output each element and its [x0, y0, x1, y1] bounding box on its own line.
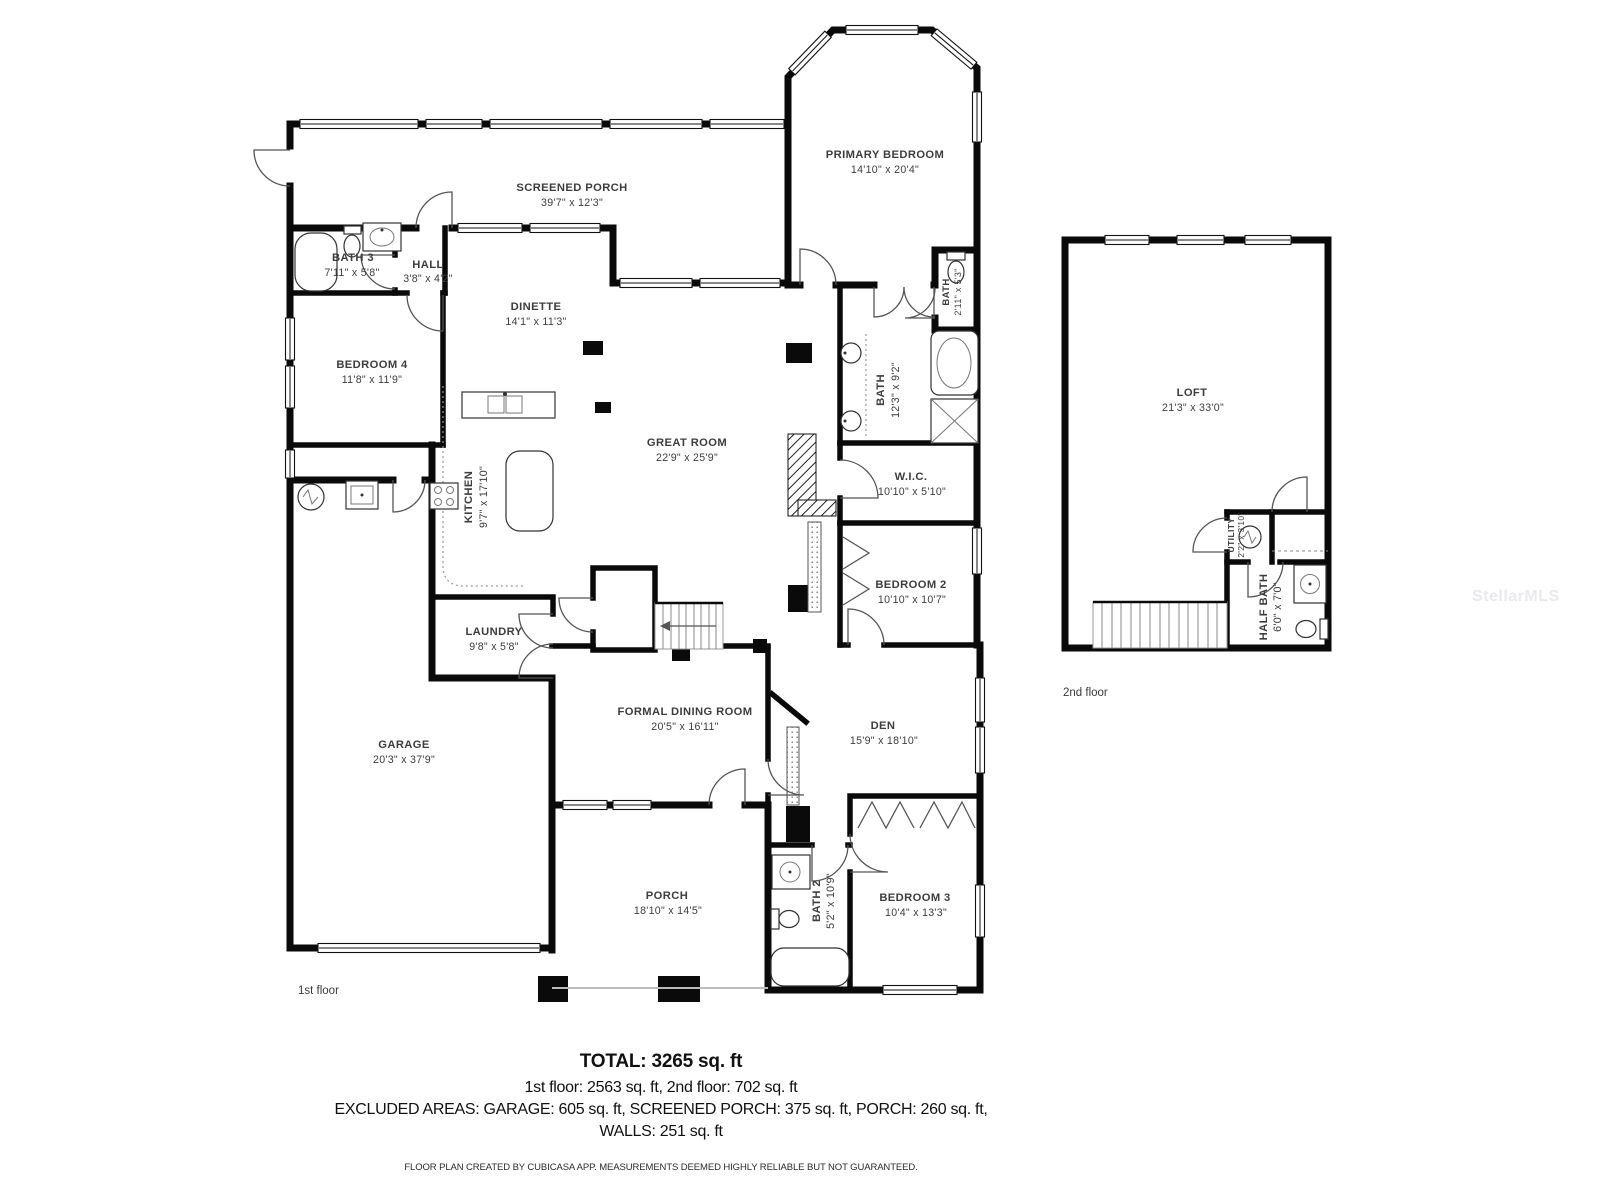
stellar-mls-watermark: StellarMLS	[1472, 588, 1560, 606]
bifold-closet-doors	[920, 802, 975, 828]
total-area-text: TOTAL: 3265 sq. ft	[0, 1051, 1322, 1073]
first-floor-interior-walls	[290, 228, 980, 990]
disclaimer-text: FLOOR PLAN CREATED BY CUBICASA APP. MEAS…	[0, 1162, 1322, 1173]
stairs-first-floor	[655, 603, 723, 649]
svg-text:10'10" x 10'7": 10'10" x 10'7"	[878, 594, 946, 606]
svg-text:20'5" x 16'11": 20'5" x 16'11"	[651, 721, 718, 733]
room-label-half-bath: HALF BATH	[1258, 574, 1270, 641]
svg-text:6'0" x 7'0": 6'0" x 7'0"	[1272, 582, 1284, 632]
second-floor-exterior-walls	[1065, 240, 1328, 648]
svg-text:2'2" x 3'10": 2'2" x 3'10"	[1236, 512, 1246, 558]
svg-text:14'1" x 11'3": 14'1" x 11'3"	[505, 316, 566, 328]
svg-text:20'3" x 37'9": 20'3" x 37'9"	[373, 754, 435, 766]
room-label-primary-bath: BATH	[875, 374, 887, 406]
bathtub	[771, 948, 849, 986]
toilet	[1320, 619, 1328, 639]
svg-text:21'3" x 33'0": 21'3" x 33'0"	[1162, 402, 1224, 414]
svg-text:7'11" x 5'8": 7'11" x 5'8"	[324, 267, 379, 279]
room-labels-first-floor: SCREENED PORCH 39'7" x 12'3" PRIMARY BED…	[298, 149, 963, 997]
room-label-garage: GARAGE	[378, 739, 430, 751]
bifold-closet-doors	[843, 537, 869, 569]
half-bath-fixtures	[1294, 565, 1328, 639]
room-label-bath2: BATH 2	[811, 880, 823, 922]
garage-fixtures	[298, 481, 378, 510]
kitchen-island	[506, 451, 553, 531]
windows-second-floor	[1105, 236, 1291, 245]
second-floor-caption: 2nd floor	[1063, 687, 1108, 699]
room-label-porch: PORCH	[646, 890, 688, 902]
excluded-areas-text: EXCLUDED AREAS: GARAGE: 605 sq. ft, SCRE…	[0, 1101, 1322, 1119]
second-floor-plan: LOFT 21'3" x 33'0" UTILITY 2'2" x 3'10" …	[1063, 236, 1328, 700]
room-label-kitchen: KITCHEN	[463, 471, 475, 524]
room-label-screened-porch: SCREENED PORCH	[516, 182, 627, 194]
bifold-closet-doors	[843, 573, 869, 605]
walls-area-text: WALLS: 251 sq. ft	[0, 1123, 1322, 1141]
room-label-den: DEN	[871, 720, 896, 732]
room-label-bedroom2: BEDROOM 2	[875, 579, 946, 591]
room-label-great-room: GREAT ROOM	[647, 437, 727, 449]
room-label-bath3: BATH 3	[332, 252, 374, 264]
svg-text:12'3" x 9'2": 12'3" x 9'2"	[890, 362, 902, 418]
svg-text:5'2" x 10'9": 5'2" x 10'9"	[825, 873, 837, 929]
svg-text:14'10" x 20'4": 14'10" x 20'4"	[851, 164, 919, 176]
floor-areas-text: 1st floor: 2563 sq. ft, 2nd floor: 702 s…	[0, 1079, 1322, 1097]
room-label-loft: LOFT	[1177, 387, 1208, 399]
first-floor-caption: 1st floor	[298, 985, 339, 997]
svg-text:3'8" x 4'2": 3'8" x 4'2"	[403, 273, 453, 285]
svg-text:10'10" x 5'10": 10'10" x 5'10"	[878, 486, 946, 498]
room-label-dinette: DINETTE	[511, 301, 562, 313]
toilet	[771, 909, 779, 929]
stove	[430, 483, 458, 509]
svg-text:11'8" x 11'9": 11'8" x 11'9"	[342, 374, 402, 386]
stairs-second-floor	[1093, 602, 1227, 648]
first-floor-plan: SCREENED PORCH 39'7" x 12'3" PRIMARY BED…	[254, 26, 985, 1003]
svg-text:9'8" x 5'8": 9'8" x 5'8"	[469, 641, 519, 653]
room-label-bedroom4: BEDROOM 4	[336, 359, 408, 371]
floor-plan-page: SCREENED PORCH 39'7" x 12'3" PRIMARY BED…	[0, 0, 1600, 1200]
svg-text:15'9" x 18'10": 15'9" x 18'10"	[850, 735, 918, 747]
svg-text:2'11" x 5'3": 2'11" x 5'3"	[953, 268, 963, 315]
room-label-formal-dining: FORMAL DINING ROOM	[617, 706, 752, 718]
room-label-hall: HALL	[412, 259, 443, 271]
room-label-primary-bedroom: PRIMARY BEDROOM	[826, 149, 945, 161]
floor-plan-drawing: SCREENED PORCH 39'7" x 12'3" PRIMARY BED…	[0, 0, 1600, 1200]
svg-text:9'7" x 17'10": 9'7" x 17'10"	[478, 466, 490, 528]
svg-text:22'9" x 25'9": 22'9" x 25'9"	[656, 452, 718, 464]
bifold-closet-doors	[858, 802, 914, 828]
water-heater	[298, 484, 324, 510]
kitchen-fixtures	[430, 386, 555, 586]
svg-text:10'4" x 13'3": 10'4" x 13'3"	[885, 907, 947, 919]
room-label-wic: W.I.C.	[895, 471, 928, 483]
toilet	[344, 226, 361, 234]
room-label-laundry: LAUNDRY	[465, 626, 522, 638]
bathtub	[295, 233, 337, 291]
room-label-utility: UTILITY	[1226, 518, 1236, 553]
bath2-fixtures	[771, 855, 849, 986]
room-label-bath-small: BATH	[941, 278, 952, 305]
svg-text:18'10" x 14'5": 18'10" x 14'5"	[634, 905, 702, 917]
sink-vanity	[363, 223, 401, 251]
toilet	[947, 252, 965, 260]
fireplace-chase	[787, 434, 836, 805]
svg-text:39'7" x 12'3": 39'7" x 12'3"	[541, 197, 603, 209]
room-label-bedroom3: BEDROOM 3	[879, 892, 950, 904]
